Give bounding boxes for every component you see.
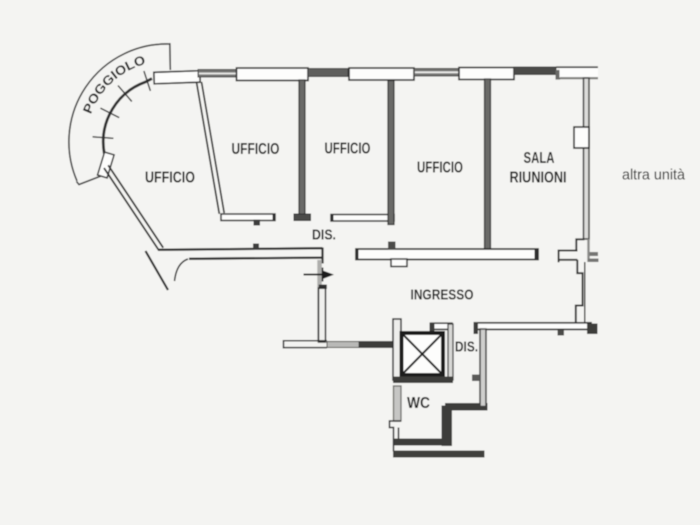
svg-text:INGRESSO: INGRESSO	[411, 287, 474, 304]
svg-text:DIS.: DIS.	[312, 227, 336, 244]
svg-text:SALA: SALA	[524, 150, 555, 167]
svg-text:UFFICIO: UFFICIO	[145, 170, 195, 187]
svg-text:altra unità: altra unità	[622, 167, 686, 184]
svg-text:UFFICIO: UFFICIO	[325, 141, 371, 158]
svg-text:WC: WC	[407, 395, 430, 412]
svg-text:UFFICIO: UFFICIO	[232, 141, 280, 158]
svg-text:UFFICIO: UFFICIO	[417, 160, 463, 177]
svg-text:RIUNIONI: RIUNIONI	[510, 170, 567, 187]
svg-text:DIS.: DIS.	[455, 339, 478, 356]
